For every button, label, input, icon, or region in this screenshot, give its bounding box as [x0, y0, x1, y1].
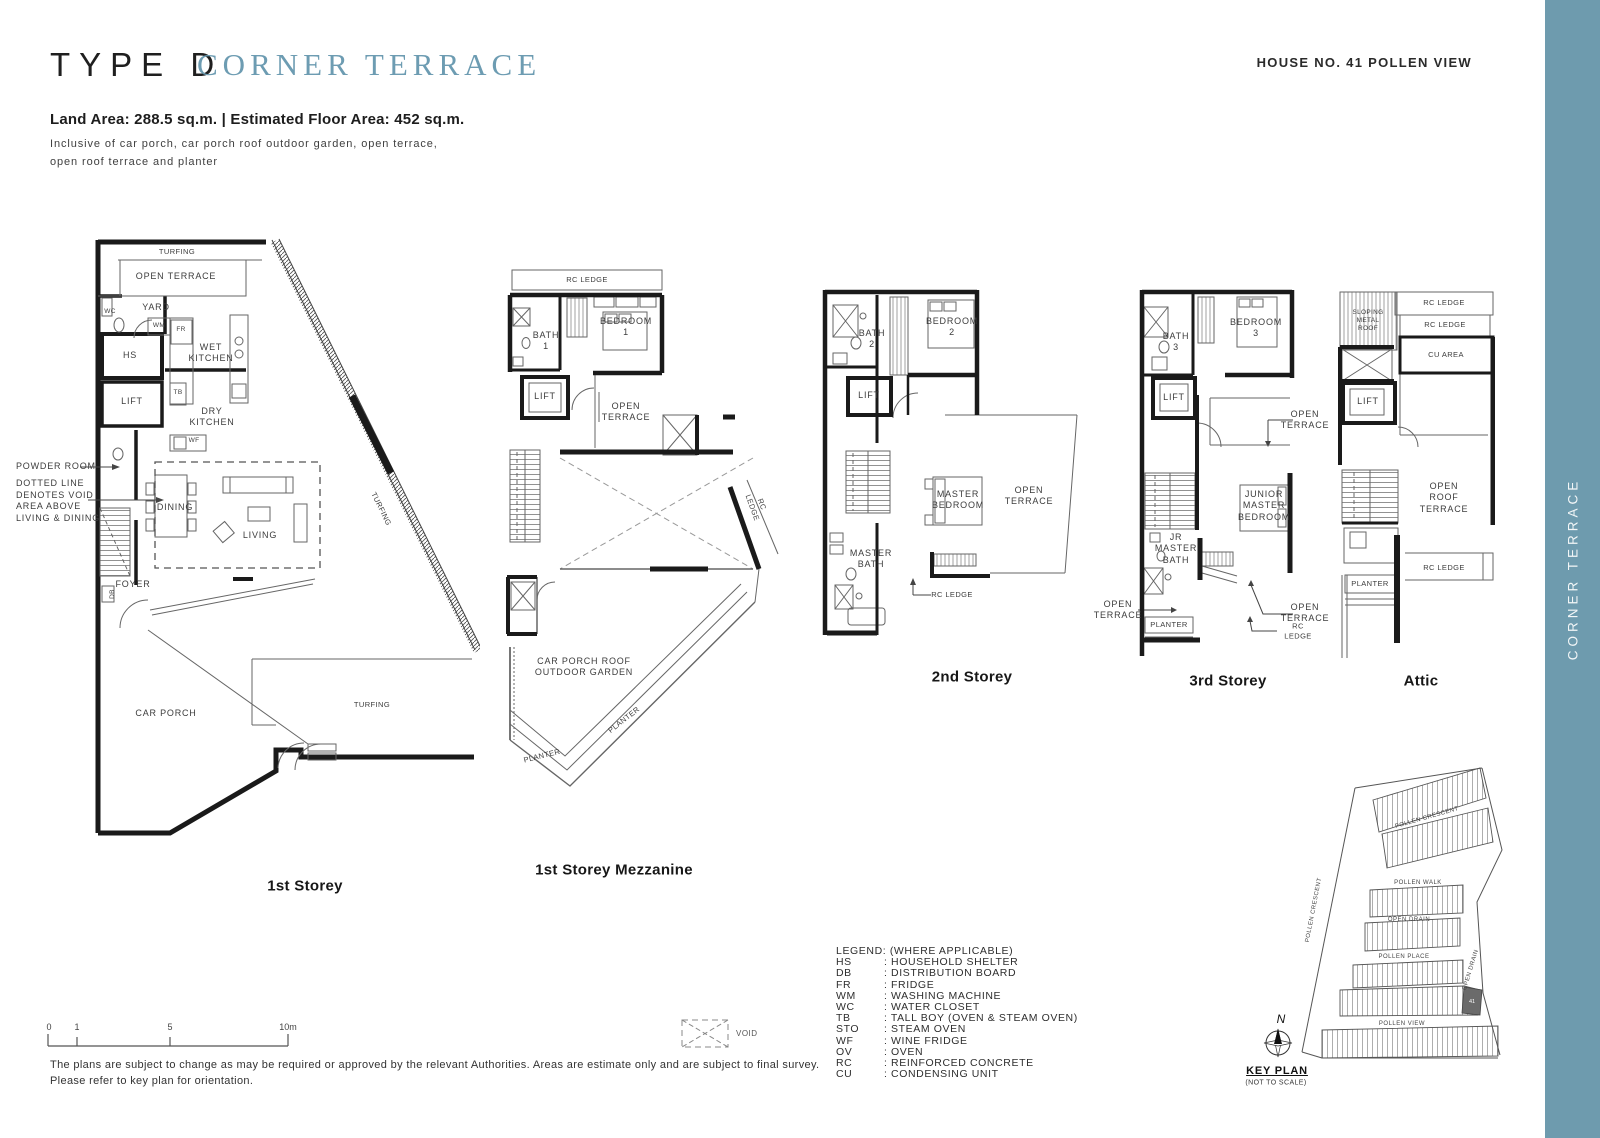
key-plan: POLLEN CRESCENT POLLEN WALK OPEN DRAIN P… — [1230, 755, 1505, 1100]
scale-tick-0: 0 — [46, 1022, 51, 1032]
scale-tick-5: 5 — [167, 1022, 172, 1032]
legend-row: STO: STEAM OVEN — [836, 1024, 1078, 1035]
inclusive-note: Inclusive of car porch, car porch roof o… — [50, 136, 438, 171]
void-symbol-linework — [676, 1014, 786, 1052]
plan-first-storey: TURFING OPEN TERRACE WC YARD WM FR HS LI… — [10, 238, 480, 898]
side-banner: CORNER TERRACE — [1545, 0, 1600, 1138]
north-label: N — [1277, 1012, 1286, 1026]
unit-41-marker: 41 — [1469, 999, 1475, 1005]
plan-second-storey: BATH 2 BEDROOM 2 LIFT MASTER BEDROOM OPE… — [815, 283, 1085, 698]
street-label-pollen-view: POLLEN VIEW — [1379, 1021, 1425, 1027]
scale-bar: 0 1 5 10m — [42, 1020, 302, 1052]
north-compass — [1264, 1029, 1292, 1057]
legend-row: DB: DISTRIBUTION BOARD — [836, 968, 1078, 979]
side-banner-label: CORNER TERRACE — [1565, 478, 1580, 661]
void-symbol-label: VOID — [736, 1029, 758, 1038]
legend-row: WF: WINE FRIDGE — [836, 1036, 1078, 1047]
plan-third-storey-linework — [1060, 283, 1330, 698]
street-label-open-drain: OPEN DRAIN — [1388, 917, 1430, 923]
plan-attic: SLOPING METAL ROOF RC LEDGE RC LEDGE CU … — [1310, 285, 1495, 700]
area-info: Land Area: 288.5 sq.m. | Estimated Floor… — [50, 111, 464, 128]
plan-mezzanine-linework — [497, 262, 782, 912]
street-label-pollen-place: POLLEN PLACE — [1378, 954, 1429, 960]
plan-attic-linework — [1310, 285, 1495, 700]
scale-tick-1: 1 — [74, 1022, 79, 1032]
house-number: HOUSE NO. 41 POLLEN VIEW — [1257, 55, 1472, 70]
street-label-pollen-walk: POLLEN WALK — [1394, 880, 1442, 886]
floor-plan-page: TYPE D CORNER TERRACE HOUSE NO. 41 POLLE… — [0, 0, 1600, 1138]
key-plan-linework — [1230, 755, 1505, 1100]
plan-first-storey-linework — [10, 238, 480, 898]
page-title-name: CORNER TERRACE — [197, 47, 541, 83]
void-symbol: VOID — [676, 1014, 786, 1052]
plan-mezzanine: RC LEDGE BATH 1 BEDROOM 1 LIFT OPEN TERR… — [497, 262, 782, 912]
disclaimer-text: The plans are subject to change as may b… — [50, 1058, 1500, 1090]
scale-tick-10m: 10m — [279, 1022, 297, 1032]
plan-third-storey: BATH 3 BEDROOM 3 LIFT OPEN TERRACE JUNIO… — [1060, 283, 1330, 698]
plan-second-storey-linework — [815, 283, 1085, 698]
